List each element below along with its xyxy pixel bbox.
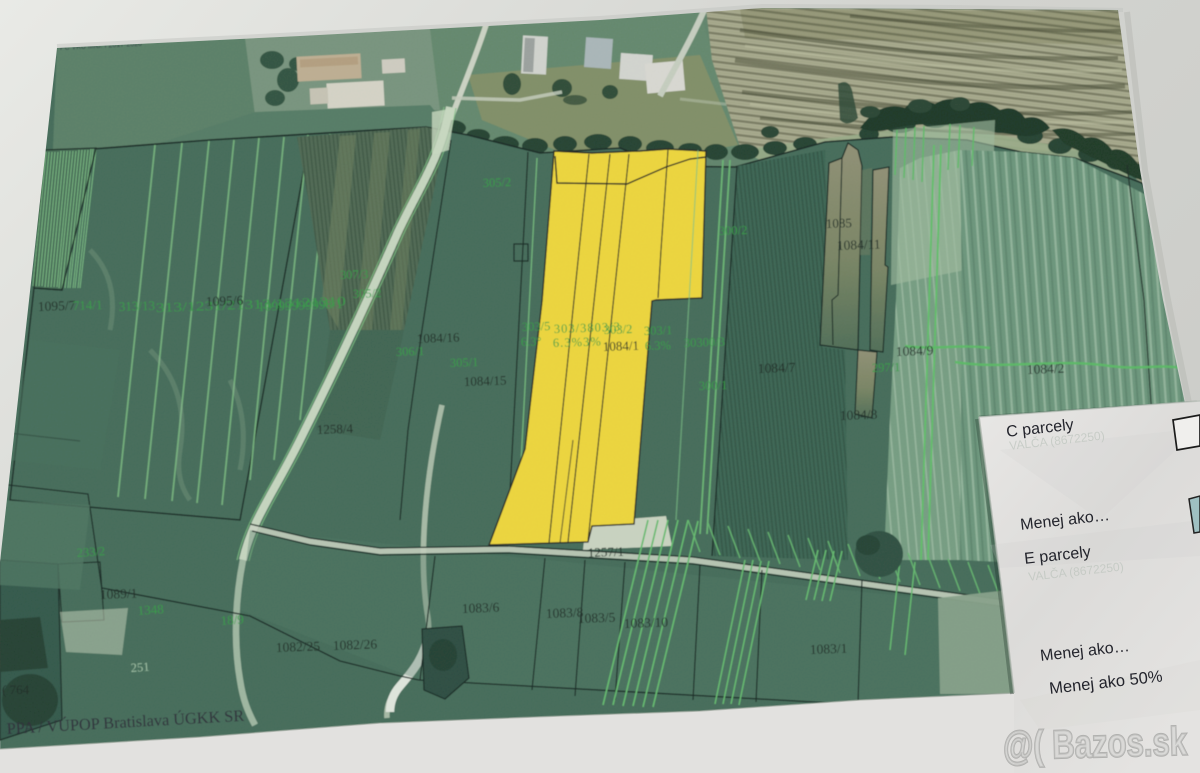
svg-text:@( Bazos.sk: @( Bazos.sk — [1002, 720, 1188, 769]
